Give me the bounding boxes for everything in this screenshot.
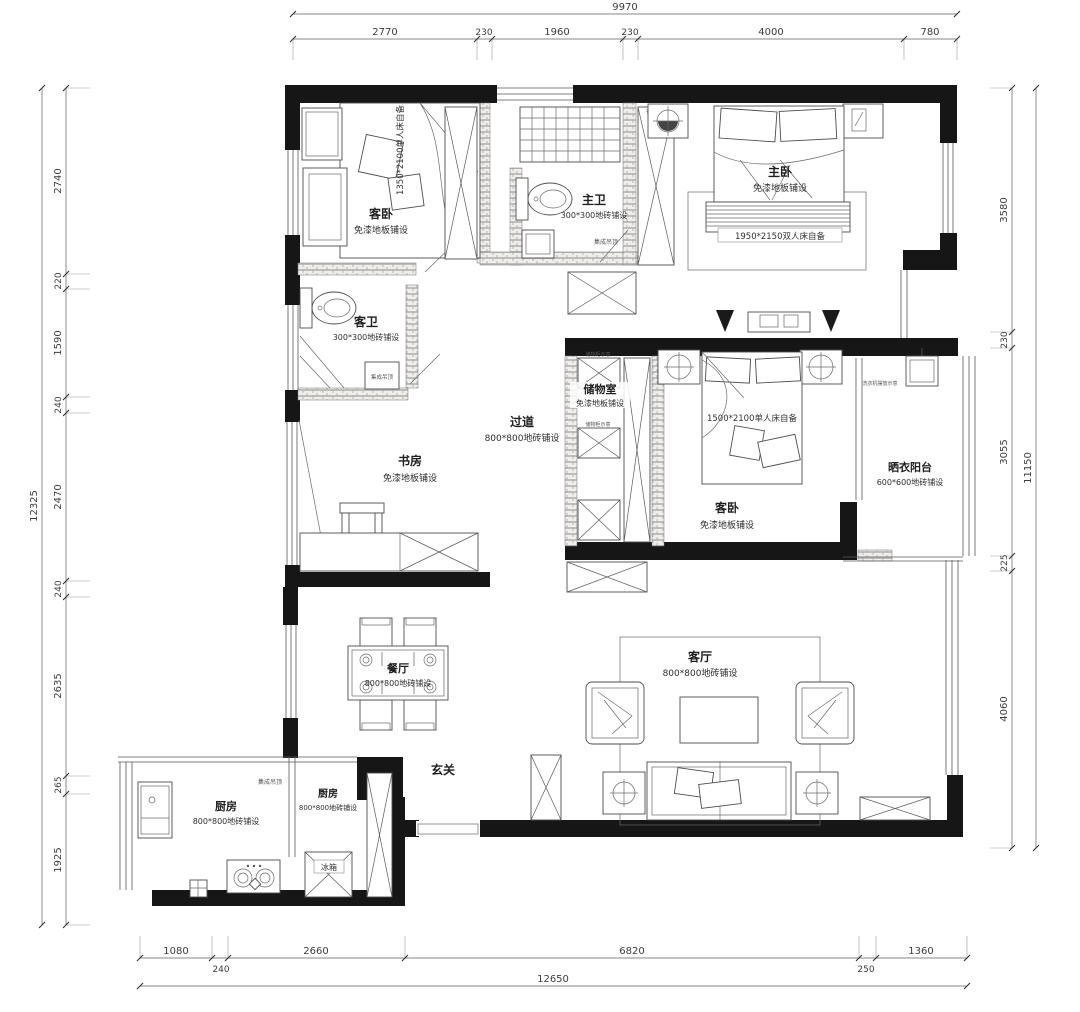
- study-finish: 免漆地板铺设: [383, 472, 437, 484]
- room-laundry-balcony: 洗衣机摆放示意 晒衣阳台 600*600地砖铺设: [862, 348, 943, 487]
- dim-left-6: 240: [54, 580, 64, 597]
- dim-left-total: 12325: [29, 490, 40, 522]
- dim-left-4: 240: [54, 396, 64, 413]
- room-kitchen: 集成吊顶 厨房 800*800地砖铺设 厨房 800*800地砖铺设 冰箱: [138, 773, 392, 897]
- dim-left-9: 1925: [53, 847, 64, 872]
- dim-bottom-6: 1360: [908, 946, 933, 957]
- master-bath-ceiling: 集成吊顶: [594, 238, 618, 246]
- room-living: 客厅 800*800地砖铺设: [567, 562, 930, 825]
- guest-bed1-note: 1350*2100单人床自备: [395, 104, 406, 195]
- dim-bottom-3: 2660: [303, 946, 328, 957]
- room-dining: 餐厅 800*800地砖铺设: [348, 618, 448, 730]
- master-bedroom-finish: 免漆地板铺设: [753, 182, 807, 194]
- dim-top-total: 9970: [612, 2, 637, 13]
- room-guest-bedroom-2: 1500*2100单人床自备 客卧 免漆地板铺设: [658, 350, 842, 531]
- guest-bedroom-1-label: 客卧: [368, 206, 393, 221]
- corridor-label: 过道: [510, 414, 534, 429]
- guest-bedroom-2-label: 客卧: [714, 500, 739, 515]
- guest-bath-finish: 300*300地砖铺设: [333, 332, 400, 342]
- laundry-balcony-finish: 600*600地砖铺设: [877, 477, 944, 487]
- kitchen-1-finish: 800*800地砖铺设: [193, 816, 260, 826]
- living-finish: 800*800地砖铺设: [663, 667, 738, 679]
- kitchen-2-label: 厨房: [318, 787, 338, 800]
- dim-left-8: 265: [54, 776, 64, 793]
- dim-left-3: 1590: [53, 330, 64, 355]
- guest-bedroom-2-finish: 免漆地板铺设: [700, 519, 754, 531]
- laundry-balcony-label: 晒衣阳台: [888, 460, 932, 474]
- dim-top-1: 2770: [372, 27, 397, 38]
- entry-label: 玄关: [431, 762, 455, 777]
- dim-top-6: 780: [920, 27, 939, 38]
- dim-bottom-4: 6820: [619, 946, 644, 957]
- storage-cabinet-note-1: 储物柜示意: [585, 351, 610, 358]
- floor-plan-canvas: 9970 2770 230 1960 230 4000 780 12325 27…: [0, 0, 1080, 1012]
- dim-left-2: 220: [54, 272, 64, 289]
- guest-bedroom-1-finish: 免漆地板铺设: [354, 224, 408, 236]
- master-bedroom-label: 主卧: [768, 164, 792, 179]
- dim-bottom-1: 1080: [163, 946, 188, 957]
- dim-right-1: 3580: [999, 197, 1010, 222]
- storage-label: 储物室: [584, 382, 617, 396]
- guest-bed2-note: 1500*2100单人床自备: [707, 413, 798, 424]
- dim-right-2: 230: [1000, 331, 1010, 348]
- kitchen-1-label: 厨房: [215, 799, 237, 813]
- room-storage: 储物柜示意 储物柜示意 储物室 免漆地板铺设: [570, 351, 650, 542]
- washer-note: 洗衣机摆放示意: [862, 380, 897, 387]
- room-entry: 玄关: [431, 755, 561, 820]
- dimension-right: 3580 230 3055 225 4060 11150: [990, 85, 1039, 851]
- dining-finish: 800*800地砖铺设: [365, 678, 432, 688]
- room-guest-bath: 客卫 300*300地砖铺设 集成吊顶: [300, 288, 440, 389]
- dim-right-5: 4060: [999, 696, 1010, 721]
- guest-bath-label: 客卫: [353, 314, 378, 329]
- dimension-left: 12325 2740 220 1590 240 2470 240 2635 26…: [29, 85, 90, 928]
- room-master-bath: 主卫 300*300地砖铺设 集成吊顶: [516, 107, 628, 262]
- dim-left-7: 2635: [53, 673, 64, 698]
- dim-left-5: 2470: [53, 484, 64, 509]
- dim-top-2: 230: [475, 28, 492, 38]
- living-label: 客厅: [687, 649, 712, 664]
- corridor-finish: 800*800地砖铺设: [485, 432, 560, 444]
- dim-left-1: 2740: [53, 168, 64, 193]
- guest-bath-ceiling: 集成吊顶: [371, 373, 394, 381]
- fridge-label: 冰箱: [321, 862, 337, 872]
- master-bed-note: 1950*2150双人床自备: [735, 231, 826, 242]
- kitchen-2-finish: 800*800地砖铺设: [299, 803, 357, 812]
- dim-bottom-total: 12650: [537, 974, 569, 985]
- dim-bottom-5: 250: [857, 965, 874, 975]
- dim-right-4: 225: [1000, 554, 1010, 571]
- room-master-bedroom: 主卧 免漆地板铺设 1950*2150双人床自备: [648, 104, 883, 270]
- master-bath-finish: 300*300地砖铺设: [561, 210, 628, 220]
- dimension-bottom: 1080 240 2660 6820 250 1360 12650: [137, 936, 970, 989]
- storage-cabinet-note-2: 储物柜示意: [585, 421, 610, 428]
- floor-plan-sheet: 9970 2770 230 1960 230 4000 780 12325 27…: [0, 0, 1080, 1012]
- master-bath-label: 主卫: [582, 192, 606, 207]
- storage-finish: 免漆地板铺设: [576, 398, 624, 408]
- dim-right-3: 3055: [999, 439, 1010, 464]
- dim-bottom-2: 240: [212, 965, 229, 975]
- study-label: 书房: [398, 453, 422, 468]
- dim-right-total: 11150: [1023, 452, 1034, 484]
- room-study: 书房 免漆地板铺设: [299, 420, 478, 571]
- dim-top-3: 1960: [544, 27, 569, 38]
- dim-top-5: 4000: [758, 27, 783, 38]
- kitchen-ceiling: 集成吊顶: [258, 778, 282, 786]
- dimension-top: 9970 2770 230 1960 230 4000 780: [290, 2, 960, 60]
- dim-top-4: 230: [621, 28, 638, 38]
- dining-label: 餐厅: [386, 661, 409, 675]
